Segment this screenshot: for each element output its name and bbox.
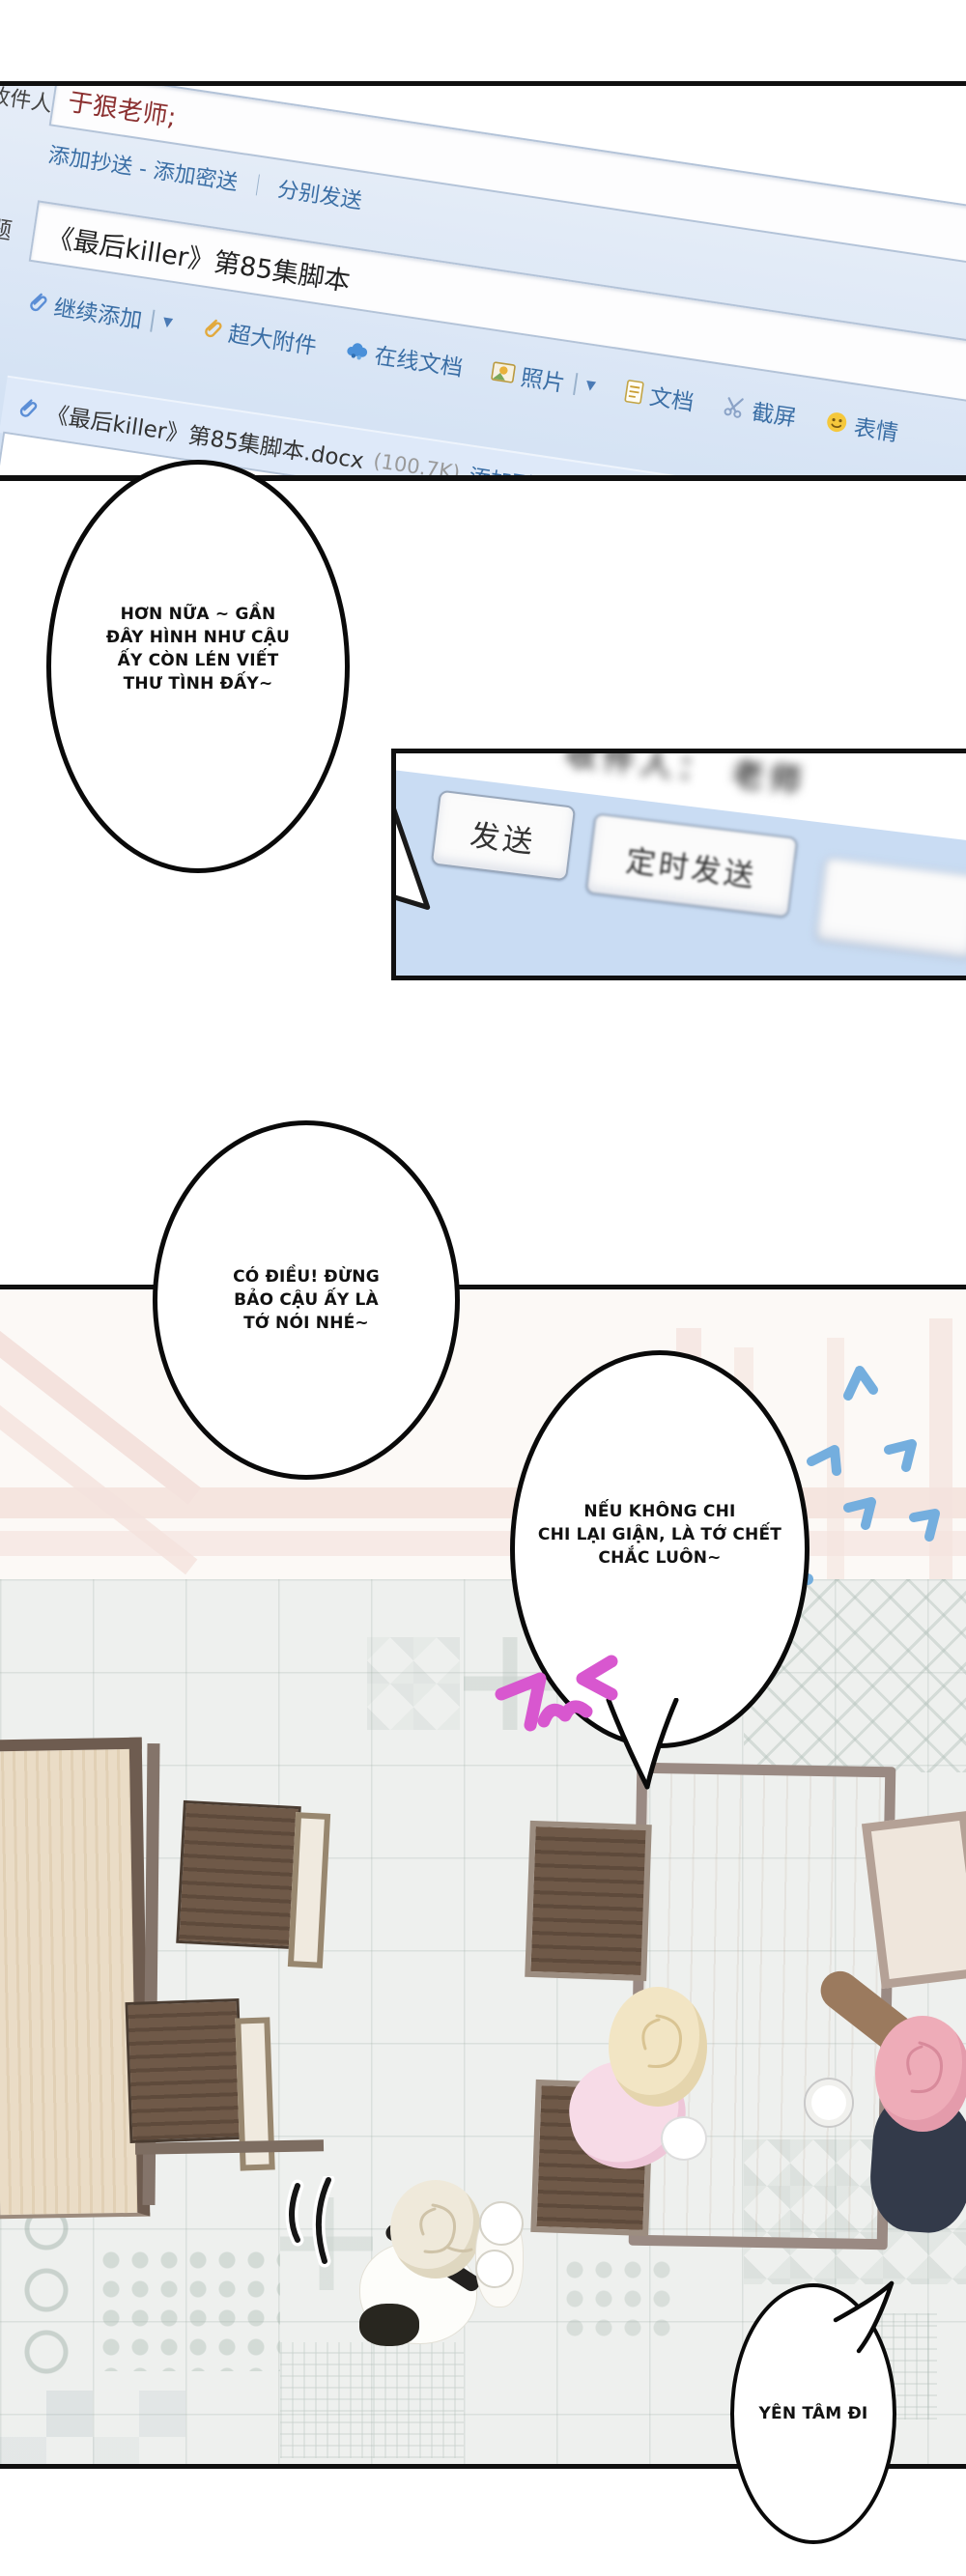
add-bcc-link[interactable]: 添加密送 [152,159,240,196]
cloud-icon [344,338,370,362]
link-dash: - [137,157,149,183]
plate [661,2116,707,2161]
attachment-size: (100.7K) [372,449,462,481]
link-divider: ｜ [236,172,279,202]
speech-text-2: CÓ ĐIỀU! ĐỪNG BẢO CẬU ẤY LÀ TỚ NÓI NHÉ~ [233,1265,380,1335]
comic-page: 收件人 于狠老师; 添加抄送 - 添加密送｜分别发送 主题 《最后killer》… [0,0,966,2576]
photo-button[interactable]: 照片 | ▼ [489,354,598,403]
speech-text-1: HƠN NỮA ~ GẦN ĐÂY HÌNH NHƯ CẬU ẤY CÒN LÉ… [106,603,290,695]
big-table-chair-left [525,1821,652,1981]
speech-bubble-1: HƠN NỮA ~ GẦN ĐÂY HÌNH NHƯ CẬU ẤY CÒN LÉ… [46,460,350,873]
add-cc-link[interactable]: 添加抄送 [46,144,134,181]
separate-send-link[interactable]: 分别发送 [276,178,364,214]
paperclip-icon [25,290,49,316]
screenshot-button[interactable]: 截屏 [721,389,799,433]
pink-character-head [875,2016,966,2132]
subject-label: 主题 [0,206,14,246]
speech-bubble-2: CÓ ĐIỀU! ĐỪNG BẢO CẬU ẤY LÀ TỚ NÓI NHÉ~ [153,1120,460,1480]
pink-scribble [488,1644,623,1736]
cup-on-tray [475,2250,514,2288]
super-attachment-button[interactable]: 超大附件 [199,311,320,361]
recipient-label: 收件人 [0,81,55,118]
blue-flutter-marks [792,1357,947,1589]
cup-on-tray [479,2201,524,2246]
hair-swirl [609,1987,707,2107]
floor-tile-pattern [0,2197,93,2391]
chevron-down-icon[interactable]: ▼ [584,378,596,393]
speech-text-4: YÊN TÂM ĐI [759,2402,868,2425]
hair-swirl [390,2180,481,2279]
floor-tile-pattern [367,1637,460,1730]
chair-seat [125,1998,243,2143]
emoji-button[interactable]: 表情 [822,404,900,447]
panel-send-click: 收件人： 老师 发送 定时发送 [391,749,966,980]
walking-character-head [390,2180,481,2279]
doc-button[interactable]: 文档 [622,374,696,416]
online-doc-button[interactable]: 在线文档 [343,332,466,382]
speech-text-3: NẾU KHÔNG CHI CHI LẠI GIẬN, LÀ TỚ CHẾT C… [538,1500,781,1570]
floor-tile-pattern [0,2391,93,2469]
floor-tile-pattern [280,2342,464,2458]
panel-email-compose: 收件人 于狠老师; 添加抄送 - 添加密送｜分别发送 主题 《最后killer》… [0,81,966,481]
continue-add-button[interactable]: 继续添加 | ▼ [24,285,175,339]
speech-bubble-4-tail [826,2276,908,2367]
paperclip-yellow-icon [200,316,224,342]
floor-tile-pattern [97,2246,280,2371]
photo-icon [490,360,516,384]
document-icon [622,379,644,405]
hair-swirl [875,2016,966,2132]
attachment-action-link[interactable]: 添加到网盘 [468,460,578,481]
paperclip-icon [14,396,39,422]
floor-tile-pattern [560,2255,676,2348]
floor-tile-pattern [93,2391,185,2469]
chair-seat [176,1800,301,1949]
smiley-icon [823,409,849,435]
bag [359,2304,419,2346]
blonde-character-head [609,1987,707,2107]
motion-marks [278,2176,352,2269]
coffee-cup [804,2078,854,2128]
email-window: 收件人 于狠老师; 添加抄送 - 添加密送｜分别发送 主题 《最后killer》… [0,81,966,481]
left-table [0,1738,150,2220]
chevron-down-icon[interactable]: ▼ [162,314,174,329]
scissors-icon [721,394,747,420]
